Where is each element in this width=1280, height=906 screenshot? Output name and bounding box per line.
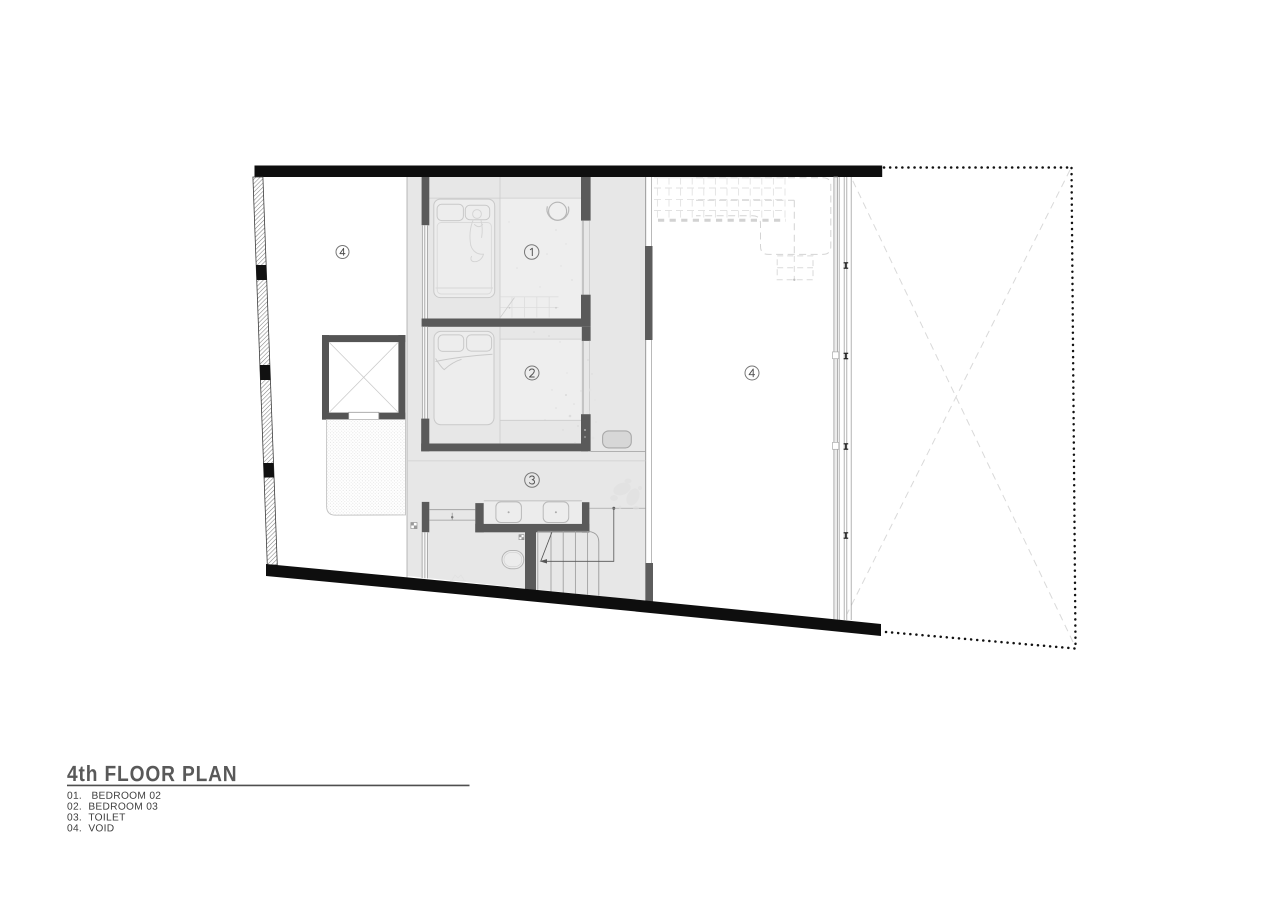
svg-text:03. TOILET: 03. TOILET: [67, 813, 126, 824]
svg-text:04. VOID: 04. VOID: [67, 823, 114, 834]
svg-text:4th FLOOR PLAN: 4th FLOOR PLAN: [67, 761, 238, 786]
svg-text:01. BEDROOM 02: 01. BEDROOM 02: [67, 791, 161, 802]
svg-text:02. BEDROOM 03: 02. BEDROOM 03: [67, 802, 158, 813]
